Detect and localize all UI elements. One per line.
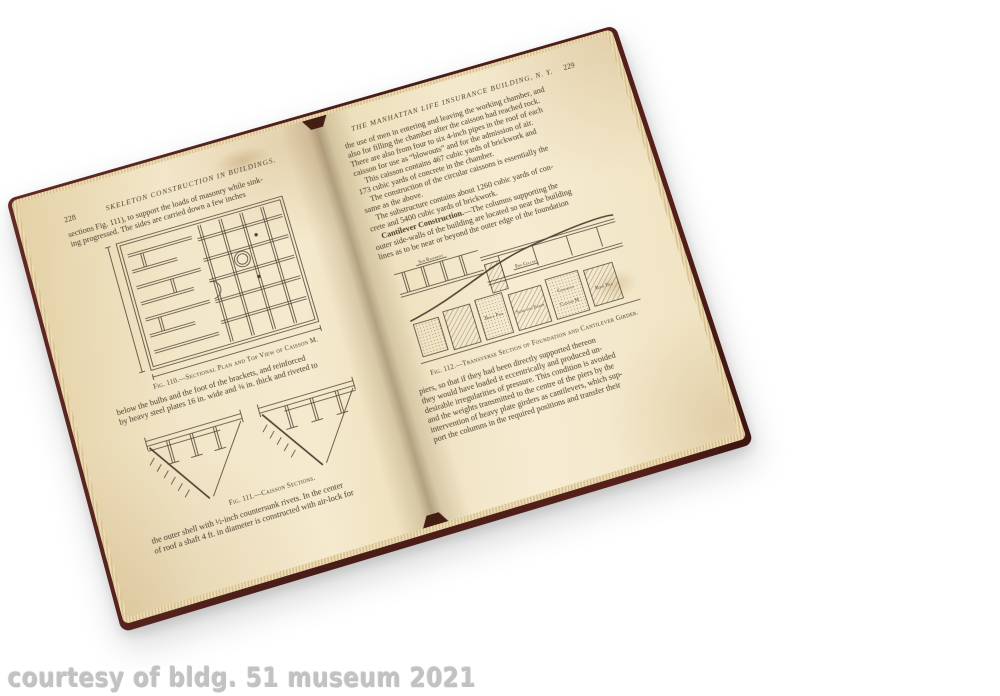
open-book: 228 SKELETON CONSTRUCTION IN BUILDINGS. … xyxy=(6,25,754,633)
right-page-number: 229 xyxy=(562,61,576,72)
page-spread: 228 SKELETON CONSTRUCTION IN BUILDINGS. … xyxy=(16,34,739,617)
photo-scene: 228 SKELETON CONSTRUCTION IN BUILDINGS. … xyxy=(0,0,1000,696)
central-pier xyxy=(484,260,508,293)
watermark-text: courtesy of bldg. 51 museum 2021 xyxy=(8,663,476,694)
hatch-ticks xyxy=(261,419,297,463)
plan-right-grid xyxy=(194,202,313,343)
